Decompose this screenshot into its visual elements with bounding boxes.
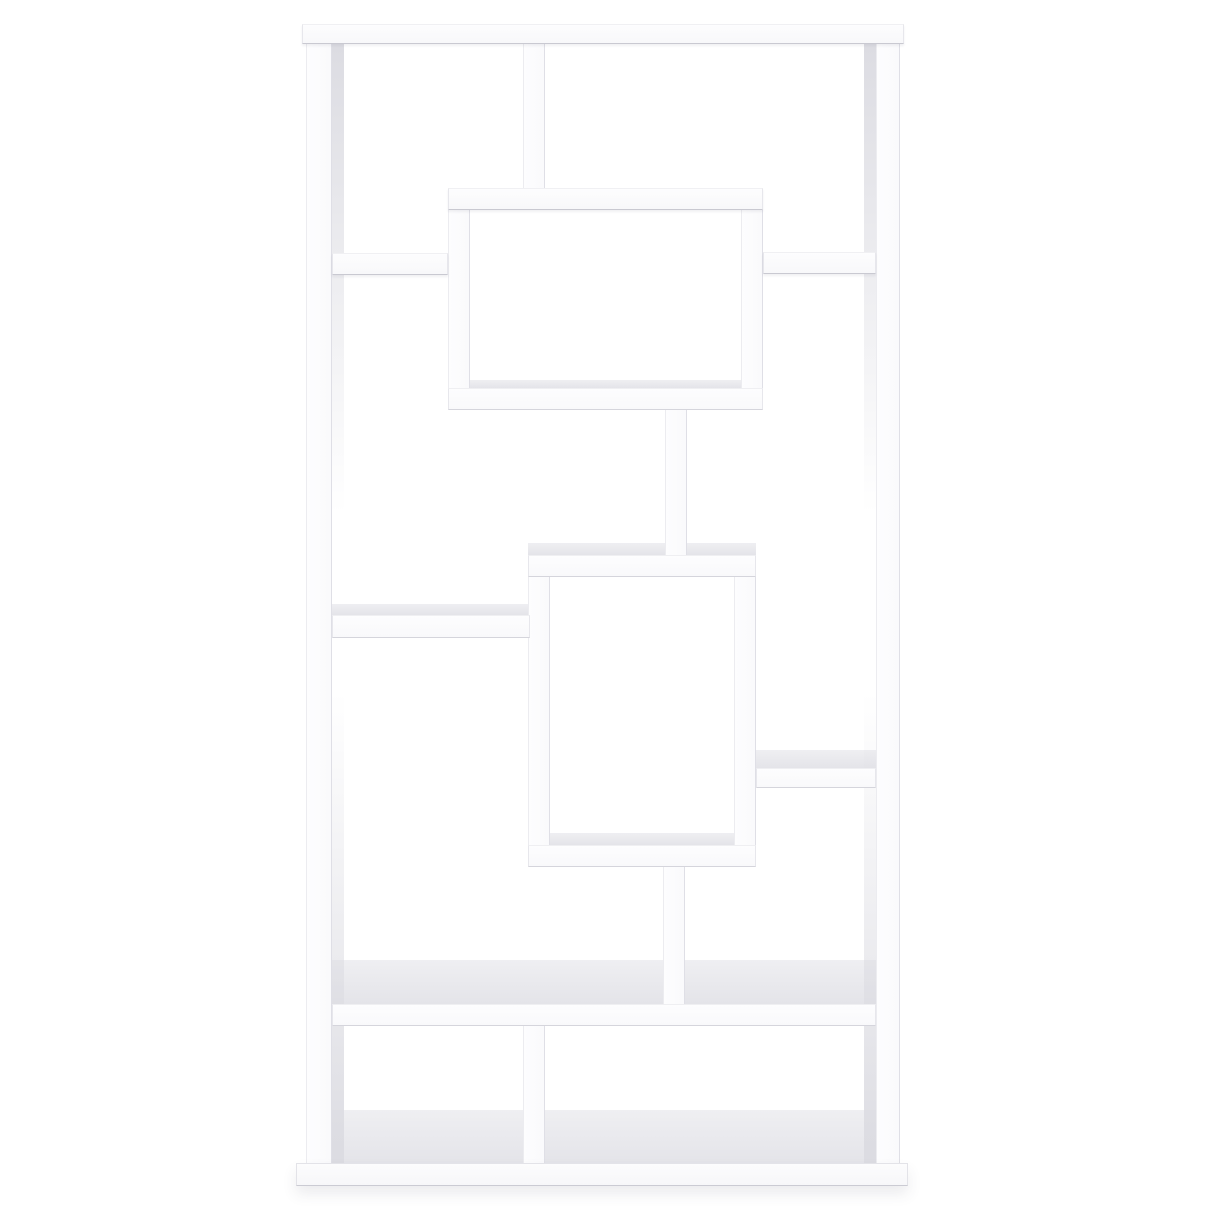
upper-box-left-wall [448,206,470,390]
left-stile-inner-face [332,44,344,1163]
right-middle-shelf [756,768,876,788]
upper-box-bottom-shelf [448,388,763,410]
left-stile [306,24,332,1163]
lower-box-bottom-shelf [528,845,756,867]
upper-box-right-wall [741,206,763,390]
lower-box-right-wall [734,575,756,847]
top-row-divider [523,44,545,192]
right-small-shelf [763,252,876,274]
big-shelf-top-surface [332,960,876,1004]
center-connector-upper [665,408,687,556]
base-plinth [296,1163,908,1186]
right-middle-shelf-surface [756,750,876,768]
lower-box-top-shelf [528,555,756,577]
lower-box-top-surface [528,543,756,555]
upper-box-floor-surface [470,380,741,388]
left-middle-shelf [332,615,530,638]
bottom-floor-surface [332,1110,876,1163]
left-small-shelf [332,253,448,275]
product-photo-white-geometric-bookcase [0,0,1214,1214]
right-stile-inner-face [864,44,876,1163]
lower-box-left-wall [528,575,550,847]
bottom-row-divider [523,1026,545,1163]
top-panel [302,24,904,44]
upper-box-top-shelf [448,188,763,210]
center-connector-lower [663,865,685,1004]
right-stile [876,24,900,1163]
big-shelf [332,1004,876,1026]
left-middle-shelf-surface [332,604,530,615]
lower-box-floor-surface [550,833,734,845]
